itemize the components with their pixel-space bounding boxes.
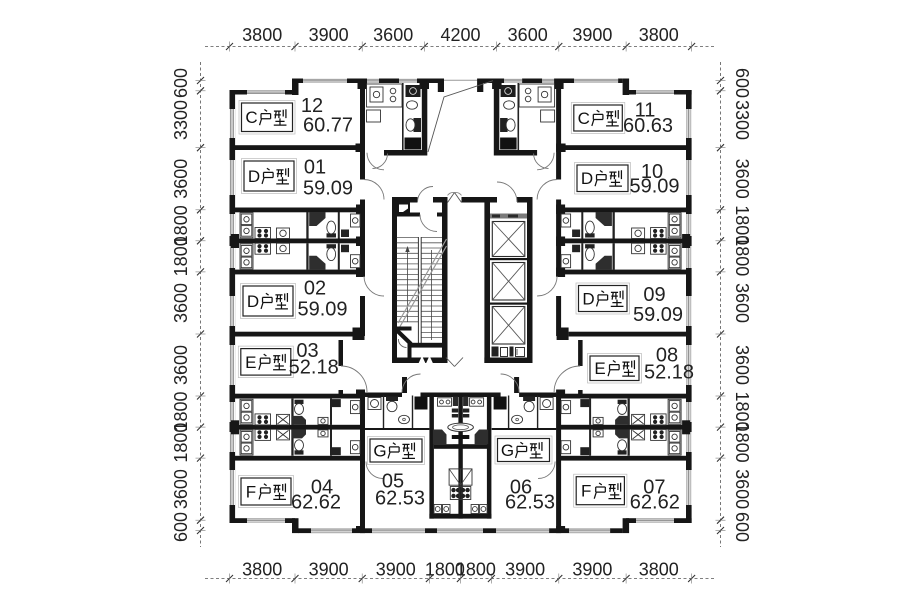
svg-text:3900: 3900 (309, 25, 349, 45)
svg-text:59.09: 59.09 (629, 175, 679, 197)
svg-text:D: D (248, 167, 260, 186)
svg-text:600: 600 (732, 512, 752, 542)
svg-text:4200: 4200 (440, 25, 480, 45)
svg-text:3600: 3600 (732, 159, 752, 199)
svg-text:C: C (245, 108, 257, 127)
svg-text:62.53: 62.53 (505, 492, 555, 514)
svg-text:3600: 3600 (171, 283, 191, 323)
svg-text:D: D (582, 290, 594, 309)
svg-text:02: 02 (304, 278, 326, 300)
svg-text:3900: 3900 (505, 560, 545, 580)
svg-text:F: F (581, 482, 591, 501)
svg-text:G: G (373, 442, 386, 461)
svg-text:52.18: 52.18 (644, 361, 694, 383)
svg-text:59.09: 59.09 (297, 299, 347, 321)
svg-text:59.09: 59.09 (633, 304, 683, 326)
svg-text:3600: 3600 (171, 345, 191, 385)
svg-text:3900: 3900 (572, 25, 612, 45)
svg-text:3900: 3900 (572, 560, 612, 580)
svg-text:3800: 3800 (242, 25, 282, 45)
svg-text:3800: 3800 (242, 560, 282, 580)
svg-text:600: 600 (171, 68, 191, 98)
svg-text:3300: 3300 (732, 100, 752, 140)
svg-text:3600: 3600 (171, 159, 191, 199)
svg-text:D: D (247, 292, 259, 311)
svg-text:600: 600 (732, 68, 752, 98)
svg-text:1800: 1800 (171, 423, 191, 463)
svg-text:3800: 3800 (639, 560, 679, 580)
svg-text:62.62: 62.62 (630, 492, 680, 514)
svg-text:3600: 3600 (732, 283, 752, 323)
svg-text:01: 01 (304, 157, 326, 179)
svg-text:3300: 3300 (171, 100, 191, 140)
svg-text:3600: 3600 (732, 469, 752, 509)
svg-text:3600: 3600 (171, 469, 191, 509)
svg-text:1800: 1800 (456, 560, 496, 580)
svg-text:59.09: 59.09 (303, 178, 353, 200)
svg-text:62.53: 62.53 (375, 488, 425, 510)
svg-text:3900: 3900 (309, 560, 349, 580)
svg-text:600: 600 (171, 512, 191, 542)
svg-text:F: F (246, 483, 256, 502)
svg-text:E: E (594, 359, 605, 378)
svg-text:D: D (581, 169, 593, 188)
svg-text:E: E (245, 353, 256, 372)
svg-text:3600: 3600 (508, 25, 548, 45)
svg-text:3800: 3800 (639, 25, 679, 45)
svg-text:3900: 3900 (376, 560, 416, 580)
svg-text:09: 09 (643, 284, 665, 306)
svg-text:52.18: 52.18 (289, 356, 339, 378)
svg-text:60.63: 60.63 (623, 115, 673, 137)
svg-text:3600: 3600 (732, 345, 752, 385)
svg-text:1800: 1800 (732, 423, 752, 463)
svg-text:62.62: 62.62 (291, 492, 341, 514)
svg-text:1800: 1800 (171, 236, 191, 276)
svg-text:G: G (501, 441, 514, 460)
svg-text:C: C (578, 109, 590, 128)
svg-text:1800: 1800 (732, 236, 752, 276)
svg-text:60.77: 60.77 (303, 115, 353, 137)
svg-text:3600: 3600 (373, 25, 413, 45)
